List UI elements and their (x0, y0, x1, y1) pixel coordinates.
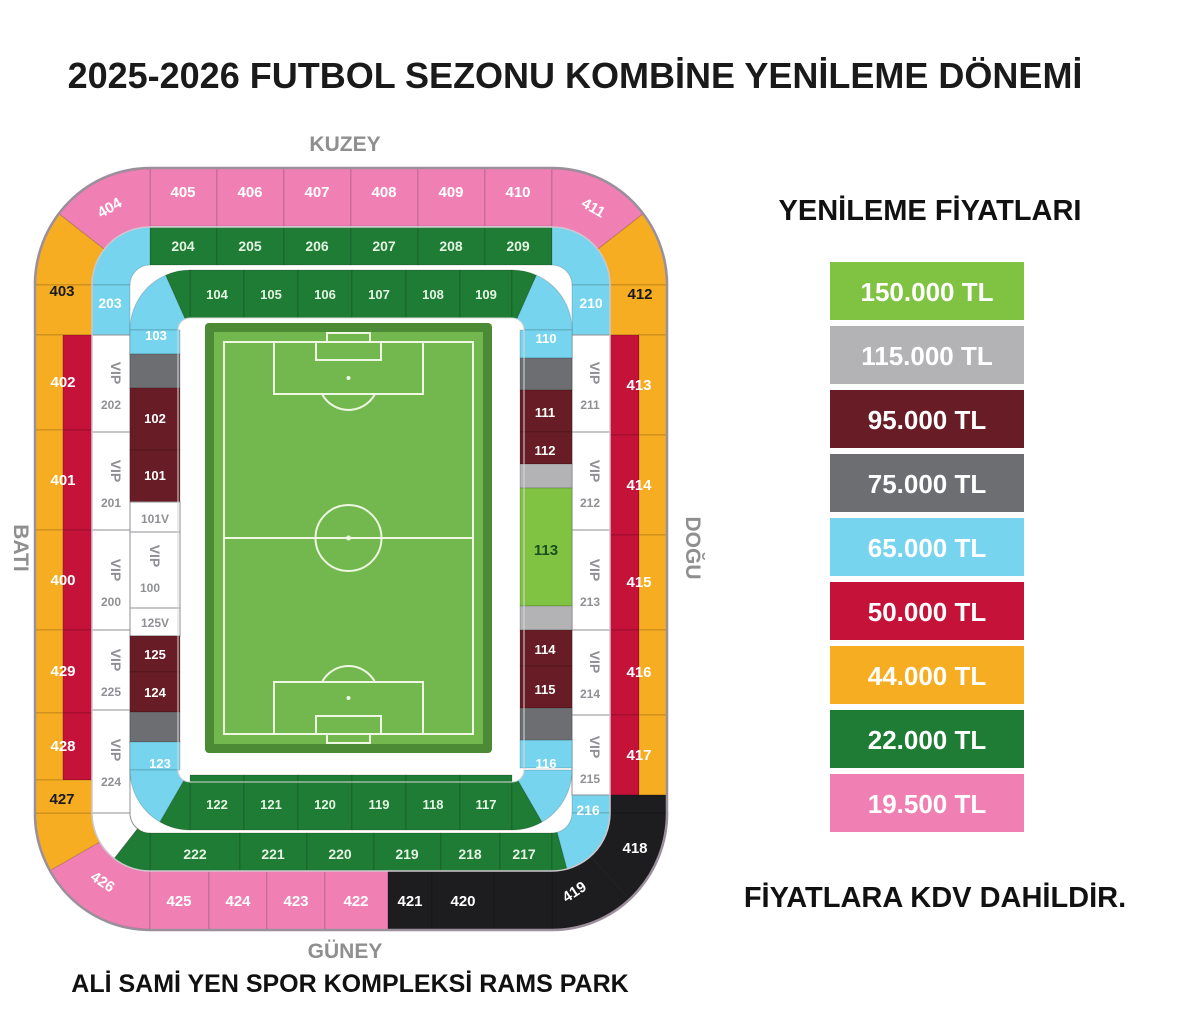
section-116-label: 116 (536, 756, 557, 771)
section-strip-111t (520, 358, 572, 390)
section-strip-115b-shape (520, 708, 572, 740)
section-423-label: 423 (283, 893, 308, 910)
compass-south-label: GÜNEY (308, 940, 383, 963)
section-108-label: 108 (422, 287, 444, 302)
section-102: 102 (130, 388, 180, 450)
legend-price-g22: 22.000 TL (868, 725, 987, 755)
section-113: 113 (520, 488, 572, 606)
section-111: 111 (520, 390, 572, 432)
section-424: 424 (209, 871, 267, 930)
section-strip-102t (130, 354, 180, 388)
section-400-label: 400 (50, 572, 75, 589)
section-201-vip-label: VIP (108, 460, 124, 483)
section-224-shape (92, 710, 130, 813)
vat-note: FİYATLARA KDV DAHİLDİR. (744, 882, 1126, 914)
legend-item-g75: 75.000 TL (830, 454, 1024, 512)
section-224-vip-label: VIP (108, 739, 124, 762)
section-204: 204 (150, 227, 217, 265)
legend-item-p19: 19.500 TL (830, 774, 1024, 832)
section-118: 118 (406, 775, 460, 830)
section-215-vip-label: VIP (587, 736, 603, 759)
section-402-label: 402 (50, 374, 75, 391)
legend-price-b65: 65.000 TL (868, 533, 987, 563)
section-100-label: 100 (140, 581, 160, 595)
section-206: 206 (284, 227, 351, 265)
section-211-vip-label: VIP (587, 362, 603, 385)
section-117-label: 117 (476, 797, 497, 812)
section-212-vip-label: VIP (587, 460, 603, 483)
section-407: 407 (284, 168, 351, 226)
section-214-vip-label: VIP (587, 651, 603, 674)
section-220: 220 (307, 833, 374, 871)
section-123-label: 123 (149, 756, 171, 771)
section-418-label: 418 (622, 840, 647, 857)
section-219-label: 219 (395, 846, 419, 862)
section-215-label: 215 (580, 772, 600, 786)
section-414-label: 414 (626, 477, 652, 494)
legend: 150.000 TL115.000 TL95.000 TL75.000 TL65… (830, 262, 1024, 832)
section-201-label: 201 (101, 496, 121, 510)
compass-west-label: BATI (9, 524, 32, 571)
legend-item-c50: 50.000 TL (830, 582, 1024, 640)
section-strip-102t-shape (130, 354, 180, 388)
section-416: 416 (610, 630, 667, 715)
section-402: 402 (35, 335, 92, 430)
compass-east-label: DOĞU (681, 517, 705, 580)
section-421: 421 (388, 871, 432, 930)
section-100-shape (130, 532, 180, 608)
section-417-label: 417 (626, 747, 651, 764)
section-202-label: 202 (101, 398, 121, 412)
kombine-poster: 2025-2026 FUTBOL SEZONU KOMBİNE YENİLEME… (0, 0, 1200, 1010)
section-125V: 125V (130, 608, 180, 636)
section-410-label: 410 (505, 184, 530, 201)
section-121-label: 121 (260, 797, 282, 812)
section-strip-114t (520, 606, 572, 630)
section-strip-111t-shape (520, 358, 572, 390)
legend-item-b65: 65.000 TL (830, 518, 1024, 576)
section-114-label: 114 (535, 642, 557, 657)
section-208-label: 208 (439, 238, 463, 254)
section-427-label: 427 (49, 791, 74, 808)
section-203-label: 203 (98, 295, 122, 311)
section-422-label: 422 (343, 893, 368, 910)
compass-north-label: KUZEY (309, 133, 380, 156)
section-strip-112b (520, 464, 572, 488)
section-401: 401 (35, 430, 92, 530)
section-403-label: 403 (49, 283, 74, 300)
section-222: 222 (114, 829, 240, 871)
section-106: 106 (298, 270, 352, 318)
legend-price-m95: 95.000 TL (868, 405, 987, 435)
legend-price-c50: 50.000 TL (868, 597, 987, 627)
section-105: 105 (244, 270, 298, 318)
section-207: 207 (351, 227, 418, 265)
section-428: 428 (35, 713, 92, 780)
section-strip-124b-shape (130, 712, 180, 742)
section-201: VIP201 (92, 432, 130, 530)
section-409-label: 409 (438, 184, 463, 201)
section-125V-label: 125V (141, 616, 169, 630)
section-405-label: 405 (170, 184, 195, 201)
section-122-label: 122 (206, 797, 228, 812)
section-219: 219 (374, 833, 441, 871)
section-105-label: 105 (260, 287, 282, 302)
section-strip-112b-shape (520, 464, 572, 488)
section-416-label: 416 (626, 664, 651, 681)
legend-price-g75: 75.000 TL (868, 469, 987, 499)
section-423: 423 (267, 871, 325, 930)
section-211-label: 211 (580, 398, 600, 412)
section-424-label: 424 (225, 893, 251, 910)
section-115: 115 (520, 666, 572, 708)
section-225-label: 225 (101, 685, 121, 699)
section-125: 125 (130, 636, 180, 672)
section-425: 425 (150, 871, 209, 930)
section-202-vip-label: VIP (108, 362, 124, 385)
section-410: 410 (485, 168, 552, 226)
legend-item-s115: 115.000 TL (830, 326, 1024, 384)
section-strip-115b (520, 708, 572, 740)
section-413: 413 (610, 335, 667, 435)
section-209-label: 209 (506, 238, 530, 254)
section-113-label: 113 (534, 542, 558, 559)
section-101V: 101V (130, 502, 180, 532)
section-202: VIP202 (92, 335, 130, 432)
legend-item-g22: 22.000 TL (830, 710, 1024, 768)
section-421-label: 421 (397, 893, 422, 910)
section-strip-124b (130, 712, 180, 742)
section-101V-label: 101V (141, 512, 169, 526)
section-200-vip-label: VIP (108, 559, 124, 582)
section-221-label: 221 (261, 846, 285, 862)
section-415-label: 415 (626, 574, 651, 591)
section-125-label: 125 (144, 647, 166, 662)
football-pitch (205, 323, 492, 753)
section-408-label: 408 (371, 184, 396, 201)
pitch-penalty-spot-bottom (347, 696, 351, 700)
section-214: VIP214 (572, 630, 610, 715)
section-218: 218 (441, 833, 500, 871)
section-108: 108 (406, 270, 460, 318)
section-406-label: 406 (237, 184, 262, 201)
section-211: VIP211 (572, 335, 610, 432)
section-strip-114t-shape (520, 606, 572, 630)
section-119-label: 119 (369, 797, 390, 812)
section-205: 205 (217, 227, 284, 265)
section-120: 120 (298, 775, 352, 830)
section-425-label: 425 (166, 893, 191, 910)
section-400: 400 (35, 530, 92, 630)
section-224-label: 224 (101, 775, 121, 789)
section-407-label: 407 (304, 184, 329, 201)
section-422: 422 (325, 871, 388, 930)
legend-item-a44: 44.000 TL (830, 646, 1024, 704)
section-405: 405 (150, 168, 217, 226)
section-428-label: 428 (50, 738, 75, 755)
legend-price-a44: 44.000 TL (868, 661, 987, 691)
section-101-label: 101 (144, 468, 166, 483)
section-124: 124 (130, 672, 180, 712)
section-107: 107 (352, 270, 406, 318)
section-213-label: 213 (580, 595, 600, 609)
section-408: 408 (351, 168, 418, 226)
section-218-label: 218 (458, 846, 482, 862)
legend-price-p19: 19.500 TL (868, 789, 987, 819)
section-214-label: 214 (580, 687, 600, 701)
legend-price-s115: 115.000 TL (861, 341, 993, 371)
pitch-center-spot (346, 536, 351, 541)
section-406: 406 (217, 168, 284, 226)
section-112: 112 (520, 432, 572, 464)
section-102-label: 102 (144, 411, 166, 426)
section-217-label: 217 (512, 846, 536, 862)
section-420-label: 420 (450, 893, 475, 910)
section-118-label: 118 (423, 797, 444, 812)
legend-item-g150: 150.000 TL (830, 262, 1024, 320)
poster-canvas: 2025-2026 FUTBOL SEZONU KOMBİNE YENİLEME… (0, 0, 1200, 1010)
section-109-label: 109 (475, 287, 497, 302)
section-120-label: 120 (314, 797, 336, 812)
section-212-label: 212 (580, 496, 600, 510)
section-106-label: 106 (314, 287, 336, 302)
section-413-label: 413 (626, 377, 651, 394)
section-115-label: 115 (535, 682, 556, 697)
section-210-label: 210 (579, 295, 603, 311)
section-215: VIP215 (572, 715, 610, 795)
section-114: 114 (520, 630, 572, 666)
legend-item-m95: 95.000 TL (830, 390, 1024, 448)
section-216-label: 216 (576, 802, 600, 818)
legend-price-g150: 150.000 TL (861, 277, 994, 307)
section-414: 414 (610, 435, 667, 535)
section-107-label: 107 (368, 287, 390, 302)
section-205-label: 205 (238, 238, 262, 254)
section-220-label: 220 (328, 846, 352, 862)
section-217: 217 (500, 832, 567, 871)
section-204-label: 204 (171, 238, 195, 254)
section-213: VIP213 (572, 530, 610, 630)
section-225-vip-label: VIP (108, 649, 124, 672)
section-200: VIP200 (92, 530, 130, 630)
section-412-label: 412 (627, 286, 652, 303)
section-415: 415 (610, 535, 667, 630)
section-200-label: 200 (101, 595, 121, 609)
page-title: 2025-2026 FUTBOL SEZONU KOMBİNE YENİLEME… (68, 55, 1083, 96)
section-429-label: 429 (50, 663, 75, 680)
section-213-vip-label: VIP (587, 559, 603, 582)
section-417: 417 (610, 715, 667, 795)
legend-title: YENİLEME FİYATLARI (779, 195, 1082, 227)
section-206-label: 206 (305, 238, 329, 254)
section-101: 101 (130, 450, 180, 502)
venue-name: ALİ SAMİ YEN SPOR KOMPLEKSİ RAMS PARK (71, 970, 628, 998)
section-221: 221 (240, 833, 307, 871)
section-104-label: 104 (206, 287, 228, 302)
section-100-vip-label: VIP (147, 545, 163, 568)
section-225: VIP225 (92, 630, 130, 710)
section-222-label: 222 (183, 846, 207, 862)
section-209: 209 (485, 227, 552, 265)
section-212: VIP212 (572, 432, 610, 530)
section-208: 208 (418, 227, 485, 265)
pitch-penalty-spot-top (347, 376, 351, 380)
section-121: 121 (244, 775, 298, 830)
section-420: 420 (432, 871, 494, 930)
section-401-label: 401 (50, 472, 75, 489)
section-112-label: 112 (535, 443, 556, 458)
section-110-label: 110 (536, 331, 557, 346)
section-103-label: 103 (145, 328, 167, 343)
section-207-label: 207 (372, 238, 396, 254)
section-100: VIP100 (130, 532, 180, 608)
section-124-label: 124 (144, 685, 166, 700)
section-111-label: 111 (535, 405, 555, 420)
section-119: 119 (352, 775, 406, 830)
section-429: 429 (35, 630, 92, 713)
section-409: 409 (418, 168, 485, 226)
section-418-shape (610, 795, 667, 813)
section-419-shape (494, 871, 552, 930)
